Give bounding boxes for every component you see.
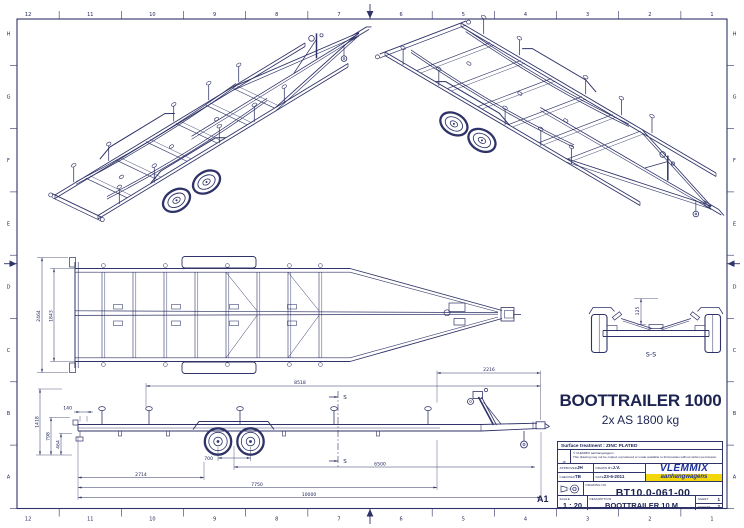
grid-row-label: E <box>7 221 10 227</box>
sheet-cells: SHEET1 SHEETS2 <box>696 496 722 510</box>
grid-row-label: F <box>7 158 10 164</box>
dim-top-length: 8518 <box>294 380 306 386</box>
scale-value: 1 : 20 <box>558 501 587 510</box>
scale-row: SCALE 1 : 20 DESCRIPTION BOOTTRAILER 10 … <box>558 496 722 510</box>
grid-col-label: 3 <box>586 517 589 523</box>
sheets-value: 2 <box>717 504 720 509</box>
grid-col-label: 4 <box>524 12 527 18</box>
scale-cell: SCALE 1 : 20 <box>558 496 588 510</box>
grid-col-label: 12 <box>25 12 31 18</box>
drawn-cells: DRAWN BYJ.V. DATE23-6-2011 <box>594 464 646 482</box>
grid-col-label: 12 <box>25 517 31 523</box>
grid-row-label: A <box>733 475 737 481</box>
grid-col-label: 9 <box>213 517 216 523</box>
section-marker: S <box>343 395 347 401</box>
brand-name: VLEMMIX <box>646 464 722 475</box>
date-value: 23-6-2011 <box>604 474 625 479</box>
grid-row-label: A <box>7 475 11 481</box>
grid-col-label: 7 <box>337 12 340 18</box>
dim-axle-spacing: 700 <box>204 456 213 462</box>
iso-view-rear <box>49 27 372 222</box>
surface-treatment-row: Surface treatment : ZINC PLATED <box>558 442 722 450</box>
grid-row-label: D <box>733 285 737 291</box>
dim-rear-to-axle: 2714 <box>135 472 147 478</box>
grid-row-label: H <box>7 31 11 37</box>
brand-tagline: aanhangwagens <box>646 474 722 481</box>
approval-cells: APPROVEDJH CHECKEDTB <box>558 464 594 482</box>
grid-row-label: H <box>733 31 737 37</box>
grid-row-label: C <box>733 348 737 354</box>
page-subtitle: 2x AS 1800 kg <box>557 414 724 428</box>
grid-col-label: 6 <box>400 12 403 18</box>
grid-col-label: 8 <box>275 12 278 18</box>
grid-row-label: D <box>7 285 11 291</box>
grid-row-label: B <box>7 411 11 417</box>
dim-rear-offset: 140 <box>63 406 72 412</box>
sheet-label: SHEET <box>698 497 709 501</box>
grid-col-label: 2 <box>648 12 651 18</box>
grid-col-label: 4 <box>524 517 527 523</box>
grid-col-label: 8 <box>275 517 278 523</box>
section-view: 125S-S <box>589 299 723 359</box>
first-angle-projection-icon <box>559 483 582 495</box>
drawing-number: BT10.0-061-00 <box>584 487 722 495</box>
grid-col-label: 11 <box>87 517 93 523</box>
dim-rear-to-winch: 7750 <box>251 482 263 488</box>
dim-section-height: 125 <box>635 307 641 316</box>
dim-overall-width: 2464 <box>36 310 42 322</box>
grid-row-label: G <box>7 95 11 101</box>
brand-logo: VLEMMIX aanhangwagens <box>646 464 722 482</box>
grid-col-label: 10 <box>149 12 155 18</box>
drawing-no-cell: DRAWING NO. BT10.0-061-00 <box>584 482 722 495</box>
projection-cell <box>558 482 584 495</box>
plan-view: 24641843 <box>36 257 521 374</box>
approved-value: JH <box>577 465 583 470</box>
grid-row-label: C <box>7 348 11 354</box>
drawn-label: DRAWN BY <box>594 465 612 470</box>
drawing-no-row: DRAWING NO. BT10.0-061-00 <box>558 482 722 496</box>
dim-inner-width: 1843 <box>48 310 54 322</box>
dim-hub-height: 464 <box>55 440 61 449</box>
sheet-format-label: A1 <box>537 494 549 504</box>
date-label: DATE <box>594 474 604 479</box>
grid-col-label: 5 <box>462 517 465 523</box>
approved-label: APPROVED <box>558 465 577 470</box>
grid-col-label: 11 <box>87 12 93 18</box>
dim-frame-height: 798 <box>45 432 51 441</box>
copyright-line2: This drawing may not be copied, reproduc… <box>573 455 720 459</box>
grid-row-label: B <box>733 411 737 417</box>
description-value: BOOTTRAILER 10 M <box>588 501 695 510</box>
approval-row: APPROVEDJH CHECKEDTB DRAWN BYJ.V. DATE23… <box>558 464 722 483</box>
checked-value: TB <box>575 474 581 479</box>
iso-view-front <box>375 15 724 217</box>
sheet-value: 1 <box>717 497 720 502</box>
dim-winch-height: 1418 <box>34 416 40 428</box>
grid-col-label: 10 <box>149 517 155 523</box>
description-cell: DESCRIPTION BOOTTRAILER 10 M <box>588 496 696 510</box>
sheets-label: SHEETS <box>698 505 711 509</box>
title-block: Surface treatment : ZINC PLATED JP © VLE… <box>557 441 723 508</box>
checked-label: CHECKED <box>558 474 575 479</box>
page-title: BOOTTRAILER 1000 <box>557 391 724 411</box>
grid-col-label: 2 <box>648 517 651 523</box>
grid-col-label: 5 <box>462 12 465 18</box>
grid-row-label: E <box>733 221 736 227</box>
dim-axle-to-coupling: 6500 <box>374 462 386 468</box>
grid-col-label: 3 <box>586 12 589 18</box>
grid-col-label: 1 <box>710 12 713 18</box>
tag-cell: JP <box>558 450 571 463</box>
section-title: S-S <box>646 351 657 359</box>
surface-treatment: Surface treatment : ZINC PLATED <box>558 442 637 449</box>
dim-total-length: 10000 <box>302 492 317 498</box>
grid-col-label: 7 <box>337 517 340 523</box>
copyright-cell: © VLEMMIX aanhangwagens This drawing may… <box>571 450 722 463</box>
section-marker: S <box>343 459 347 465</box>
tag-value: JP <box>562 460 566 463</box>
dim-front-overhang: 2216 <box>483 367 495 373</box>
grid-row-label: G <box>733 95 737 101</box>
copyright-row: JP © VLEMMIX aanhangwagens This drawing … <box>558 450 722 464</box>
grid-col-label: 6 <box>400 517 403 523</box>
drawing-sheet: 121211111010998877665544332211HHGGFFEEDD… <box>0 0 744 528</box>
grid-row-label: F <box>733 158 736 164</box>
side-view: SS85182216140700650027147750100001418798… <box>34 367 549 500</box>
drawn-value: J.V. <box>612 465 620 470</box>
drawing-title: BOOTTRAILER 1000 2x AS 1800 kg <box>557 391 724 427</box>
grid-col-label: 1 <box>710 517 713 523</box>
grid-col-label: 9 <box>213 12 216 18</box>
